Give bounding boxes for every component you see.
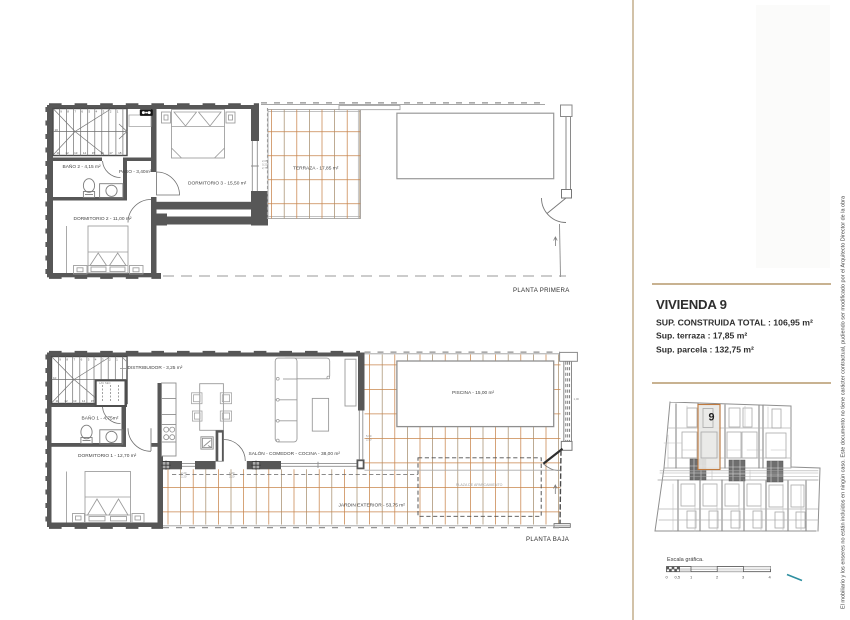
svg-text:17: 17: [109, 151, 113, 155]
svg-text:PASO - 3,40m²: PASO - 3,40m²: [119, 169, 152, 175]
svg-text:TERRAZA - 17,85 m²: TERRAZA - 17,85 m²: [293, 165, 339, 171]
svg-text:11: 11: [57, 151, 60, 155]
svg-text:2,20: 2,20: [181, 475, 187, 479]
svg-text:9: 9: [709, 412, 715, 424]
svg-text:12: 12: [65, 151, 69, 155]
svg-text:10: 10: [55, 128, 59, 132]
svg-text:JARDIN EXTERIOR - 53,75 m²: JARDIN EXTERIOR - 53,75 m²: [339, 503, 406, 509]
svg-text:El mobiliario y los enseres no: El mobiliario y los enseres no están inc…: [841, 195, 847, 609]
svg-text:SALÓN - COMEDOR - COCINA - 38,: SALÓN - COMEDOR - COCINA - 38,00 m²: [249, 450, 341, 457]
svg-text:11: 11: [56, 399, 59, 403]
svg-text:0,5: 0,5: [675, 575, 681, 580]
svg-text:13: 13: [74, 151, 78, 155]
svg-text:12: 12: [64, 399, 68, 403]
svg-text:2,50: 2,50: [366, 438, 372, 442]
svg-text:2,75: 2,75: [262, 166, 268, 170]
svg-text:13: 13: [73, 399, 77, 403]
svg-text:BAÑO 1 - 4,75m²: BAÑO 1 - 4,75m²: [82, 414, 119, 421]
svg-text:PLANTA PRIMERA: PLANTA PRIMERA: [513, 287, 570, 294]
svg-text:SUP. CONSTRUIDA TOTAL : 106,95: SUP. CONSTRUIDA TOTAL : 106,95 m²: [656, 318, 813, 328]
svg-text:14: 14: [83, 151, 87, 155]
svg-text:DORMITORIO 1 - 12,70 m²: DORMITORIO 1 - 12,70 m²: [78, 453, 137, 459]
svg-text:16: 16: [101, 151, 105, 155]
svg-text:Sup. parcela : 132,75 m²: Sup. parcela : 132,75 m²: [656, 345, 754, 355]
svg-text:1,00: 1,00: [574, 397, 580, 401]
svg-text:14: 14: [82, 399, 86, 403]
svg-text:Sup. terraza : 17,85 m²: Sup. terraza : 17,85 m²: [656, 331, 747, 341]
svg-text:PLAZA DE APARCAMIENTO: PLAZA DE APARCAMIENTO: [456, 483, 503, 487]
svg-text:BAÑO 2 - 4,15 m²: BAÑO 2 - 4,15 m²: [63, 163, 102, 170]
svg-text:10: 10: [53, 376, 57, 380]
svg-text:15: 15: [92, 151, 96, 155]
svg-text:PLANTA BAJA: PLANTA BAJA: [526, 536, 570, 543]
svg-text:15: 15: [91, 399, 95, 403]
svg-text:DORMITORIO 2 - 11,00 m²: DORMITORIO 2 - 11,00 m²: [74, 216, 132, 222]
svg-text:Escala gráfica.: Escala gráfica.: [667, 557, 704, 563]
svg-text:VIVIENDA 9: VIVIENDA 9: [656, 297, 727, 312]
svg-text:18: 18: [118, 151, 122, 155]
svg-text:DORMITORIO 3 - 15,50 m²: DORMITORIO 3 - 15,50 m²: [188, 181, 247, 187]
svg-text:PISCINA - 15,00 m²: PISCINA - 15,00 m²: [452, 390, 495, 396]
svg-text:2,20: 2,20: [229, 475, 235, 479]
svg-text:LAV SEC: LAV SEC: [99, 381, 111, 385]
svg-text:DISTRIBUIDOR - 3,25 m²: DISTRIBUIDOR - 3,25 m²: [128, 365, 183, 371]
